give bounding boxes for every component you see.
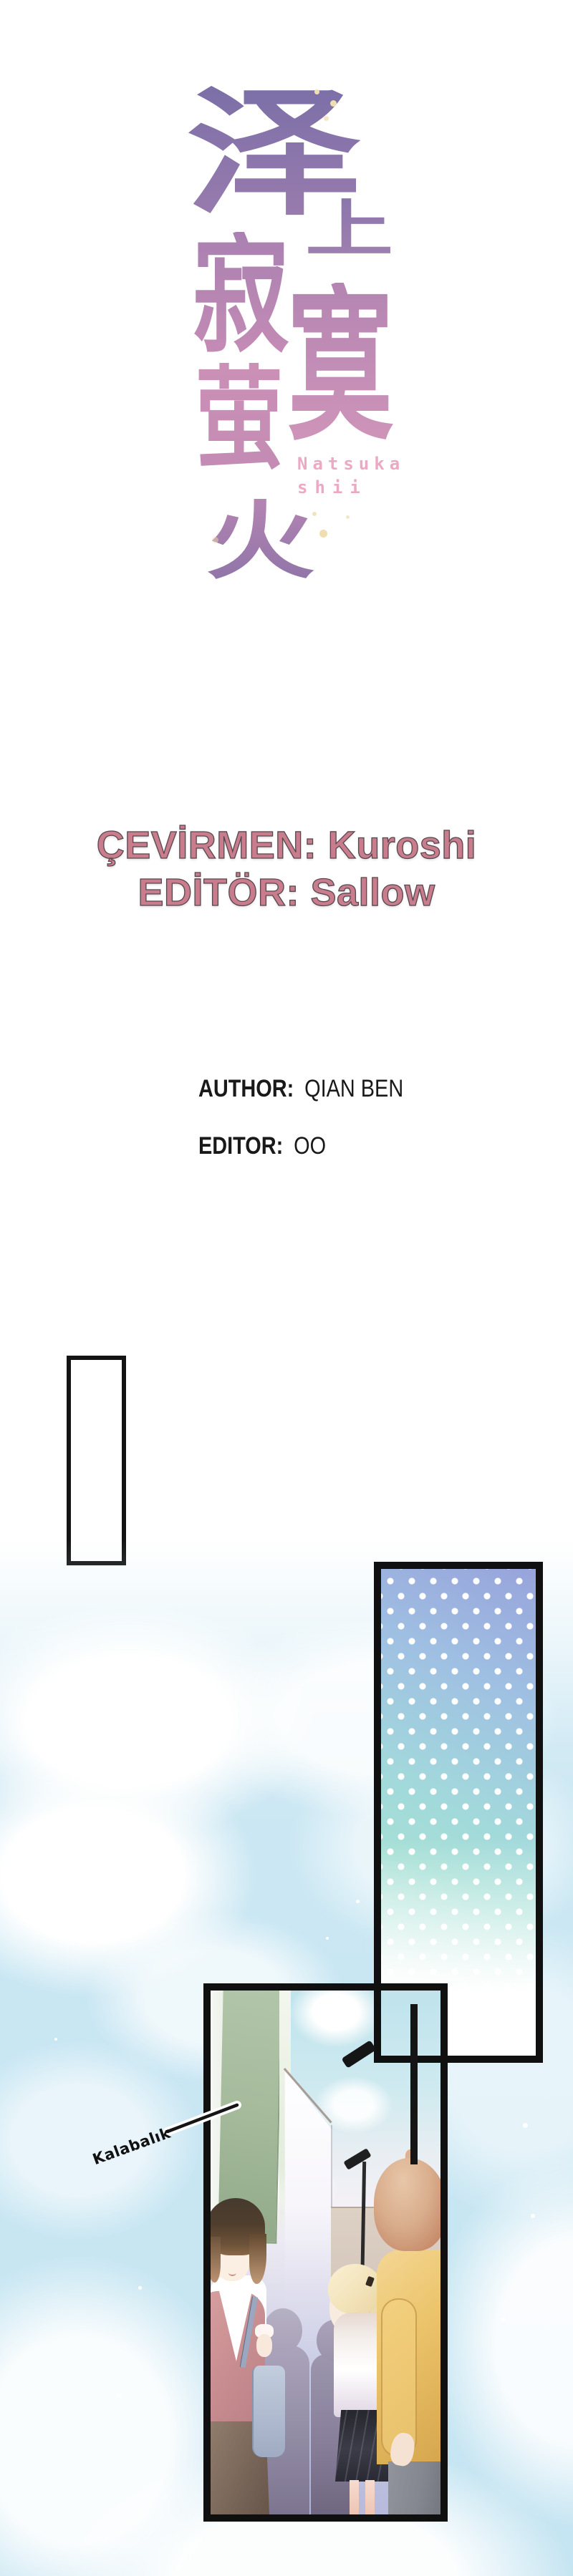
editor-name: OO [294,1132,326,1160]
title-char-6: 火 [206,499,314,583]
sky-dot [105,2536,108,2539]
decor-dot [212,537,218,543]
sky-dot [531,2214,535,2218]
author-name: QIAN BEN [304,1075,403,1102]
translator-credit: ÇEVİRMEN: Kuroshi [0,822,573,869]
title-romaji-line1: Natsuka [297,454,405,474]
title-char-4: 寞 [287,283,393,450]
translation-credits: ÇEVİRMEN: Kuroshi EDİTÖR: Sallow [0,822,573,916]
decor-dot [346,515,350,519]
decor-dot [324,116,329,121]
author-credit: AUTHOR: QIAN BEN [198,1075,403,1103]
editor-label: EDITOR: [198,1132,283,1160]
decor-dot [314,89,319,94]
sky-dot [117,2393,121,2397]
decor-dot [312,512,317,516]
empty-comic-panel [67,1356,126,1565]
decor-dot [330,100,337,107]
sky-dot [326,1937,329,1940]
decor-dot [319,530,327,538]
comic-page: 泽 上 寂 寞 萤 火 Natsuka shii ÇEVİRMEN: Kuros… [0,0,573,2576]
sky-dot [356,1900,360,1903]
sky-dot [501,2318,505,2321]
title-char-2: 上 [305,198,393,260]
sky-dot [54,2038,57,2041]
title-calligraphy: 泽 上 寂 寞 萤 火 [179,68,415,598]
street-lamp-pole [410,2004,418,2164]
author-label: AUTHOR: [198,1075,294,1102]
sky-dot [138,2286,142,2290]
title-char-5: 萤 [195,363,284,475]
sky-dot [523,2123,528,2128]
editor-credit-original: EDITOR: OO [198,1132,326,1160]
editor-credit: EDİTÖR: Sallow [0,869,573,916]
sky-dot [52,1898,54,1901]
title-char-3: 寂 [193,232,289,359]
sky-dot [119,1891,122,1895]
title-romaji-line2: shii [297,477,367,497]
